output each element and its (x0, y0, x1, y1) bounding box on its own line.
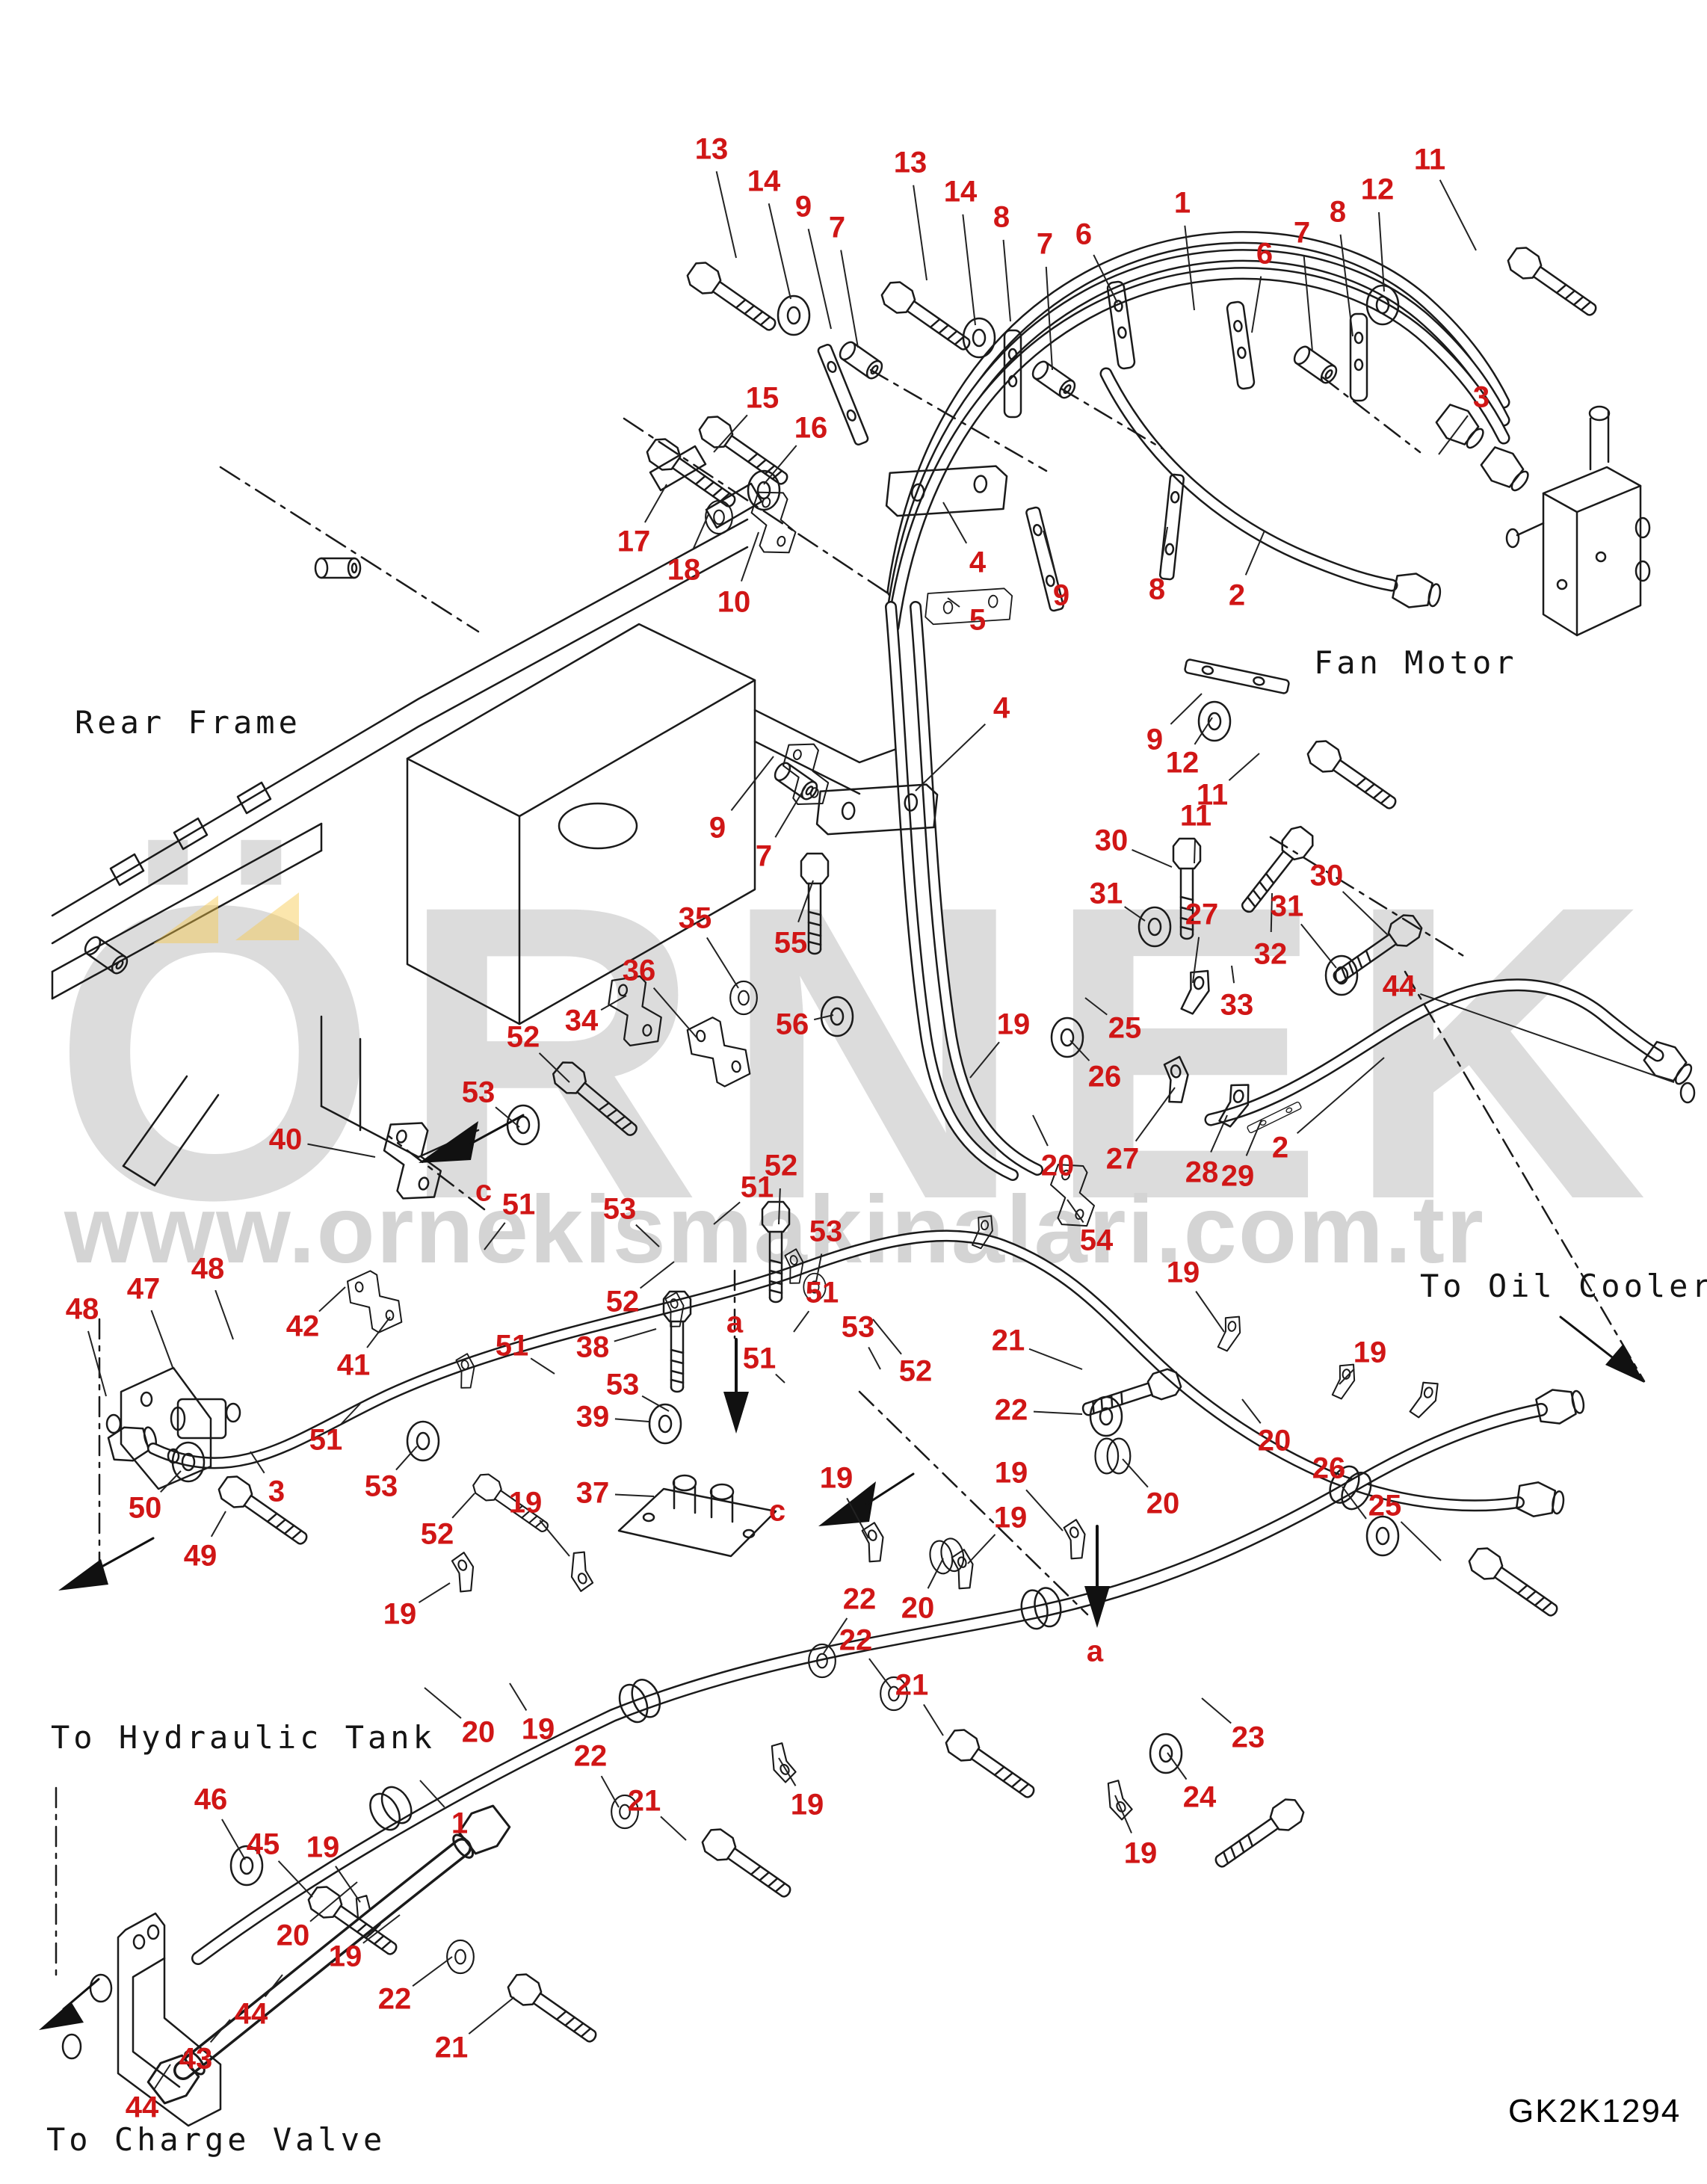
leader-line (1185, 226, 1194, 310)
label-to-charge-valve: To Charge Valve (46, 2121, 386, 2158)
leader-line (1085, 998, 1107, 1015)
part-callout-22: 22 (378, 1983, 412, 2017)
part-callout-9: 9 (709, 812, 726, 845)
leader-line (916, 724, 985, 791)
leader-line (1196, 1292, 1224, 1332)
part-callout-20: 20 (901, 1592, 935, 1626)
part-callout-17: 17 (617, 525, 651, 559)
leader-line (640, 1262, 674, 1289)
leader-line (642, 1396, 669, 1411)
leader-line (775, 786, 806, 837)
part-callout-13: 13 (695, 133, 729, 167)
part-callout-c: c (475, 1175, 492, 1209)
part-callout-44: 44 (235, 1998, 268, 2032)
part-callout-14: 14 (944, 176, 978, 209)
leader-line (1379, 212, 1384, 291)
part-callout-7: 7 (756, 840, 772, 874)
part-callout-15: 15 (746, 382, 780, 416)
leader-line (731, 756, 774, 810)
leader-line (531, 1358, 555, 1374)
part-callout-8: 8 (1149, 573, 1165, 607)
leader-line (425, 1688, 461, 1718)
leader-line (1033, 1115, 1048, 1146)
part-callout-19: 19 (820, 1462, 853, 1496)
part-callout-c: c (769, 1495, 785, 1529)
part-callout-22: 22 (995, 1394, 1028, 1428)
part-callout-51: 51 (496, 1330, 529, 1363)
part-callout-21: 21 (435, 2032, 469, 2065)
leader-line (693, 514, 709, 550)
leader-line (764, 445, 797, 484)
leader-line (707, 937, 738, 988)
leader-line (717, 171, 736, 258)
part-callout-10: 10 (717, 586, 751, 620)
leader-line (798, 880, 813, 922)
part-callout-19: 19 (995, 1457, 1028, 1490)
part-callout-50: 50 (129, 1492, 162, 1526)
leader-line (924, 1704, 943, 1736)
leader-line (1136, 1088, 1175, 1141)
part-callout-1: 1 (1174, 187, 1191, 220)
part-callout-22: 22 (574, 1740, 608, 1774)
leader-line (615, 1419, 649, 1422)
part-callout-38: 38 (576, 1331, 610, 1365)
leader-line (1161, 527, 1167, 567)
part-callout-1: 1 (451, 1807, 468, 1841)
leader-line (970, 1042, 999, 1078)
leader-line (1026, 1490, 1063, 1531)
part-callout-45: 45 (247, 1828, 280, 1862)
part-callout-53: 53 (809, 1215, 843, 1249)
part-callout-3: 3 (268, 1475, 285, 1509)
part-callout-20: 20 (462, 1716, 496, 1750)
part-callout-34: 34 (565, 1005, 599, 1038)
leader-line (1043, 531, 1055, 574)
leader-line (1343, 892, 1389, 936)
part-callout-21: 21 (628, 1785, 661, 1819)
part-callout-52: 52 (421, 1518, 454, 1552)
leader-line (873, 1319, 901, 1354)
leader-line (212, 1511, 226, 1537)
leader-line (928, 1558, 943, 1588)
leader-line (614, 1329, 656, 1342)
leader-line (769, 203, 791, 299)
part-callout-9: 9 (1053, 579, 1069, 613)
part-callout-30: 30 (1095, 824, 1129, 858)
leader-line (1202, 1698, 1231, 1724)
part-callout-30: 30 (1310, 860, 1344, 893)
part-callout-44: 44 (1383, 970, 1416, 1004)
leader-line (396, 1446, 417, 1470)
part-callout-19: 19 (509, 1487, 543, 1520)
leader-line (1167, 1753, 1187, 1780)
part-callout-16: 16 (794, 412, 828, 445)
part-callout-20: 20 (1258, 1425, 1291, 1458)
part-callout-5: 5 (969, 604, 986, 638)
leader-line (510, 1683, 526, 1710)
leader-line (342, 1404, 360, 1424)
part-callout-49: 49 (184, 1540, 217, 1573)
part-callout-13: 13 (894, 146, 927, 180)
leader-line (602, 1776, 619, 1807)
part-callout-31: 31 (1090, 877, 1123, 911)
leader-line (250, 1452, 265, 1473)
part-callout-11: 11 (1180, 800, 1211, 833)
part-callout-19: 19 (791, 1789, 824, 1822)
leader-line (363, 1915, 400, 1943)
leader-line (215, 1290, 233, 1339)
part-callout-2: 2 (1229, 579, 1245, 613)
part-callout-19: 19 (1353, 1336, 1387, 1370)
leader-line (615, 1494, 654, 1496)
leader-line (1125, 907, 1145, 921)
part-callout-2: 2 (1272, 1132, 1288, 1165)
part-callout-26: 26 (1312, 1452, 1346, 1486)
part-callout-53: 53 (462, 1076, 496, 1110)
leader-line (367, 1317, 390, 1348)
part-callout-28: 28 (1185, 1156, 1219, 1190)
label-to-hydraulic-tank: To Hydraulic Tank (51, 1719, 436, 1756)
leader-line (1029, 1349, 1082, 1369)
leader-line (654, 988, 697, 1037)
part-callout-21: 21 (895, 1669, 929, 1703)
leader-line (714, 1202, 740, 1224)
leader-line (1170, 694, 1202, 724)
leader-line (1070, 1040, 1089, 1061)
leader-line (496, 1107, 519, 1127)
part-callout-20: 20 (1041, 1150, 1075, 1183)
leader-line (452, 1493, 475, 1518)
leader-line (1440, 180, 1476, 250)
leader-line (913, 185, 927, 280)
leader-line (1252, 277, 1261, 333)
leader-line (1193, 937, 1199, 983)
part-callout-52: 52 (606, 1286, 640, 1319)
part-callout-39: 39 (576, 1401, 610, 1434)
part-callout-21: 21 (992, 1324, 1025, 1358)
label-to-oil-cooler: To Oil Cooler (1420, 1268, 1707, 1304)
leader-line (211, 2020, 230, 2042)
part-callout-52: 52 (507, 1021, 540, 1055)
leader-line (645, 484, 667, 522)
leader-line (1229, 753, 1259, 780)
part-callout-19: 19 (329, 1940, 362, 1974)
leader-line (794, 1311, 809, 1332)
part-callout-51: 51 (743, 1342, 777, 1376)
leader-line (601, 996, 626, 1010)
part-callout-51: 51 (309, 1424, 343, 1457)
leader-line (741, 532, 759, 582)
leader-line (1232, 966, 1234, 983)
part-callout-35: 35 (679, 902, 712, 936)
part-callout-51: 51 (741, 1171, 774, 1205)
leader-line (413, 1957, 452, 1986)
leader-line (161, 1471, 181, 1492)
part-callout-56: 56 (776, 1008, 809, 1042)
leader-line (943, 502, 966, 543)
part-callout-19: 19 (994, 1502, 1028, 1535)
part-callout-33: 33 (1220, 989, 1254, 1022)
part-callout-3: 3 (1473, 381, 1490, 415)
part-callout-53: 53 (842, 1311, 875, 1345)
leader-line (841, 250, 858, 348)
part-callout-8: 8 (1330, 196, 1346, 229)
drawing-number: GK2K1294 (1508, 2093, 1681, 2130)
leader-line (1194, 839, 1195, 863)
leader-line (1247, 1120, 1262, 1156)
leader-line (636, 1225, 659, 1247)
leader-line (1194, 718, 1212, 744)
part-callout-53: 53 (603, 1193, 637, 1227)
part-callout-51: 51 (502, 1188, 536, 1222)
leader-line (779, 1758, 796, 1786)
part-callout-37: 37 (576, 1477, 610, 1511)
leader-line (869, 1659, 891, 1688)
part-callout-6: 6 (1256, 238, 1273, 271)
part-callout-6: 6 (1075, 218, 1092, 252)
leader-line (154, 2064, 170, 2089)
part-callout-19: 19 (997, 1008, 1031, 1042)
leader-line (1341, 235, 1353, 336)
part-callout-42: 42 (286, 1310, 320, 1344)
part-callout-4: 4 (993, 692, 1010, 726)
leader-line (809, 229, 831, 329)
leader-line (152, 1310, 173, 1369)
part-callout-7: 7 (1294, 217, 1310, 250)
part-callout-22: 22 (839, 1624, 873, 1658)
part-callout-53: 53 (606, 1369, 640, 1402)
label-fan-motor: Fan Motor (1314, 644, 1518, 681)
part-callout-25: 25 (1368, 1490, 1402, 1523)
part-callout-40: 40 (269, 1123, 303, 1157)
leader-line (847, 1498, 868, 1538)
leader-line (1034, 1412, 1082, 1414)
part-callout-8: 8 (993, 201, 1010, 235)
part-callout-24: 24 (1183, 1781, 1217, 1815)
leader-line (1401, 1522, 1441, 1561)
part-callout-20: 20 (1146, 1487, 1180, 1521)
leader-line (469, 1997, 514, 2034)
leader-line (279, 1861, 312, 1897)
leader-line (963, 215, 975, 325)
part-callout-20: 20 (277, 1919, 310, 1953)
part-callout-36: 36 (623, 954, 656, 988)
part-callout-7: 7 (829, 212, 845, 245)
leader-line (968, 1534, 996, 1564)
leader-line (1123, 1459, 1148, 1487)
part-callout-48: 48 (66, 1293, 99, 1327)
leader-line (88, 1331, 106, 1396)
part-callout-46: 46 (194, 1783, 228, 1817)
leader-line (1301, 924, 1336, 968)
part-callout-19: 19 (1167, 1256, 1200, 1290)
part-callout-27: 27 (1185, 898, 1219, 932)
leader-line (540, 1520, 569, 1556)
part-callout-22: 22 (843, 1583, 877, 1617)
leader-line (419, 1583, 450, 1602)
leader-line (776, 1375, 785, 1383)
part-callout-12: 12 (1166, 747, 1200, 780)
part-callout-14: 14 (747, 165, 781, 199)
part-callout-a: a (1087, 1635, 1103, 1669)
part-callout-19: 19 (522, 1713, 555, 1747)
part-callout-52: 52 (899, 1355, 933, 1389)
leader-line (484, 1223, 505, 1250)
part-callout-41: 41 (337, 1349, 371, 1383)
part-callout-12: 12 (1361, 173, 1395, 207)
part-callout-4: 4 (969, 546, 986, 580)
leader-line (1420, 994, 1674, 1082)
part-callout-11: 11 (1414, 144, 1445, 177)
part-callout-29: 29 (1221, 1160, 1255, 1194)
part-callout-43: 43 (179, 2043, 213, 2076)
leader-line (222, 1819, 245, 1860)
part-callout-31: 31 (1271, 890, 1304, 924)
leader-line (307, 1144, 375, 1157)
parts-diagram-page: ÖRNEK www.ornekismakinalari.com.tr (0, 0, 1707, 2184)
part-callout-47: 47 (127, 1273, 161, 1307)
leader-line (1115, 1795, 1132, 1833)
leader-line (540, 1053, 569, 1082)
leader-line (868, 1347, 880, 1369)
part-callout-23: 23 (1232, 1721, 1265, 1755)
leader-line (948, 598, 960, 607)
part-callout-48: 48 (191, 1253, 225, 1286)
leader-line (1304, 256, 1312, 351)
leader-line (1242, 1399, 1261, 1423)
leader-line (1093, 255, 1117, 303)
leader-line (779, 1188, 780, 1224)
part-callout-9: 9 (795, 191, 812, 224)
part-callout-51: 51 (806, 1277, 839, 1310)
part-callout-a: a (726, 1307, 743, 1340)
part-callout-26: 26 (1088, 1061, 1122, 1094)
leader-line (319, 1287, 345, 1312)
leader-line (1046, 267, 1052, 370)
leader-line (1297, 1058, 1384, 1133)
leader-line (1004, 240, 1010, 321)
part-callout-32: 32 (1254, 938, 1288, 972)
leader-line (661, 1816, 686, 1840)
part-callout-18: 18 (667, 554, 701, 587)
part-callout-25: 25 (1108, 1012, 1142, 1046)
leader-line (310, 1882, 357, 1922)
leader-line (1211, 1115, 1227, 1153)
leader-line (265, 1975, 283, 1996)
part-callout-19: 19 (306, 1831, 340, 1865)
leader-line (420, 1780, 445, 1807)
part-callout-19: 19 (1124, 1837, 1158, 1871)
part-callout-44: 44 (126, 2091, 159, 2125)
part-callout-9: 9 (1146, 724, 1163, 757)
part-callout-19: 19 (383, 1598, 417, 1632)
part-callout-7: 7 (1037, 228, 1053, 262)
part-callout-55: 55 (774, 927, 808, 960)
leader-line (1246, 531, 1265, 575)
leader-line (1132, 850, 1172, 867)
part-callout-53: 53 (365, 1470, 398, 1504)
leader-line (1339, 1369, 1354, 1384)
leader-line (814, 1015, 833, 1019)
part-callout-54: 54 (1080, 1224, 1114, 1258)
leader-line (1342, 1487, 1366, 1519)
leader-line (1439, 416, 1468, 454)
part-callout-27: 27 (1106, 1143, 1140, 1176)
leader-line (714, 415, 747, 452)
leader-line (1067, 1200, 1084, 1223)
label-rear-frame: Rear Frame (75, 704, 301, 741)
